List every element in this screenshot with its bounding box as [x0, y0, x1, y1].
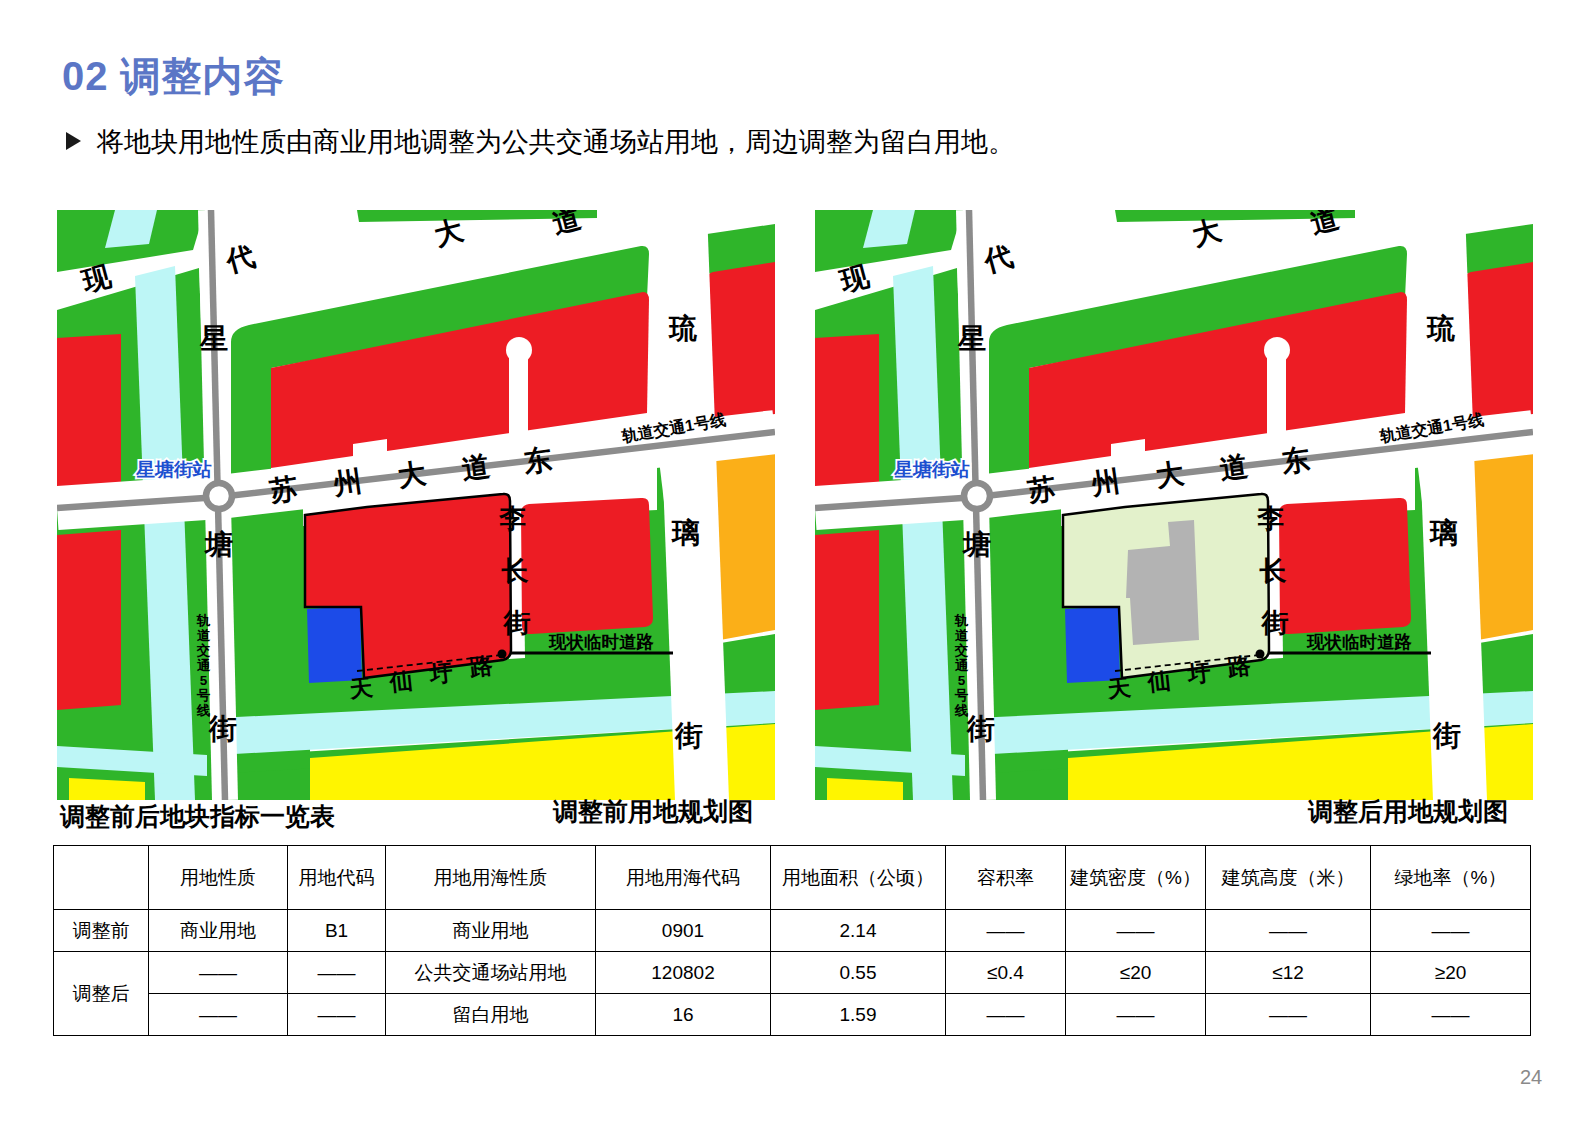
header-landsea-code: 用地用海代码 [596, 846, 771, 910]
east-red-block [521, 498, 653, 634]
svg-text:道: 道 [955, 628, 969, 643]
slide: 02 调整内容 将地块用地性质由商业用地调整为公共交通场站用地，周边调整为留白用… [0, 0, 1587, 1123]
cell: 留白用地 [386, 994, 596, 1036]
cell: —— [149, 952, 288, 994]
cell: —— [288, 994, 386, 1036]
svg-text:李: 李 [499, 504, 527, 534]
red-block [1465, 262, 1533, 421]
header-area: 用地面积（公顷） [771, 846, 946, 910]
svg-text:街: 街 [1432, 720, 1461, 751]
red-block [815, 530, 879, 710]
svg-text:长: 长 [501, 556, 529, 586]
svg-text:交: 交 [196, 643, 211, 658]
svg-text:大: 大 [1154, 457, 1187, 492]
svg-text:星: 星 [957, 323, 986, 354]
svg-text:塘: 塘 [962, 529, 991, 560]
header-far: 容积率 [946, 846, 1066, 910]
header-greenrate: 绿地率（%） [1371, 846, 1531, 910]
svg-text:号: 号 [196, 688, 211, 703]
table-row-after-2: —— —— 留白用地 16 1.59 —— —— —— —— [54, 994, 1531, 1036]
cell: —— [1066, 994, 1206, 1036]
cell: —— [288, 952, 386, 994]
cell: ≤0.4 [946, 952, 1066, 994]
red-block [57, 530, 121, 710]
svg-text:东: 东 [521, 443, 554, 478]
svg-text:道: 道 [1217, 450, 1250, 485]
cell: 0.55 [771, 952, 946, 994]
blue-parcel [307, 606, 362, 683]
svg-text:璃: 璃 [671, 517, 700, 548]
svg-text:街: 街 [674, 720, 703, 751]
bullet-arrow-icon [66, 132, 81, 150]
cell: 2.14 [771, 910, 946, 952]
svg-text:路: 路 [468, 652, 494, 680]
cell: 1.59 [771, 994, 946, 1036]
roundabout [964, 483, 990, 509]
planning-map-svg: 现代大道星塘街苏州大道东琉璃街李长街天仙圩路轨道交通5号线轨道交通1号线星塘街站… [815, 210, 1533, 800]
svg-text:街: 街 [1261, 608, 1289, 638]
road-junction-dot [498, 650, 507, 659]
svg-text:天: 天 [1105, 674, 1132, 702]
before-map-caption: 调整前用地规划图 [553, 795, 753, 828]
svg-text:天: 天 [347, 674, 374, 702]
header-landuse: 用地性质 [149, 846, 288, 910]
row-label-before: 调整前 [54, 910, 149, 952]
after-map-caption: 调整后用地规划图 [1308, 795, 1508, 828]
cell: ≤12 [1206, 952, 1371, 994]
svg-text:道: 道 [459, 450, 492, 485]
cell: —— [1371, 910, 1531, 952]
cell: ≥20 [1371, 952, 1531, 994]
cell: —— [1206, 910, 1371, 952]
svg-text:星: 星 [199, 323, 228, 354]
temp-road-label: 现状临时道路 [1306, 632, 1413, 652]
svg-text:线: 线 [954, 703, 969, 718]
page-title: 02 调整内容 [62, 49, 285, 104]
table-title: 调整前后地块指标一览表 [60, 800, 335, 833]
header-density: 建筑密度（%） [1066, 846, 1206, 910]
row-label-after: 调整后 [54, 952, 149, 1036]
svg-text:5: 5 [958, 673, 966, 688]
header-landcode: 用地代码 [288, 846, 386, 910]
cell: 120802 [596, 952, 771, 994]
temp-road-label: 现状临时道路 [548, 632, 655, 652]
road-junction-dot [1256, 650, 1265, 659]
cell: —— [1066, 910, 1206, 952]
svg-text:街: 街 [503, 608, 531, 638]
indicator-table: 用地性质 用地代码 用地用海性质 用地用海代码 用地面积（公顷） 容积率 建筑密… [53, 845, 1531, 1036]
cell: —— [1206, 994, 1371, 1036]
cell: 16 [596, 994, 771, 1036]
svg-text:州: 州 [1089, 465, 1122, 500]
svg-text:仙: 仙 [387, 667, 414, 695]
svg-text:线: 线 [196, 703, 211, 718]
svg-text:大: 大 [396, 457, 429, 492]
svg-text:号: 号 [954, 688, 969, 703]
table-row-before: 调整前 商业用地 B1 商业用地 0901 2.14 —— —— —— —— [54, 910, 1531, 952]
svg-text:5: 5 [200, 673, 208, 688]
svg-text:李: 李 [1257, 504, 1285, 534]
cell: —— [1371, 994, 1531, 1036]
cell: —— [149, 994, 288, 1036]
page-number: 24 [1520, 1066, 1542, 1089]
svg-text:仙: 仙 [1145, 667, 1172, 695]
svg-text:街: 街 [966, 713, 995, 744]
cell: B1 [288, 910, 386, 952]
svg-text:圩: 圩 [426, 659, 454, 687]
svg-text:长: 长 [1259, 556, 1287, 586]
planning-map-svg: 现代大道星塘街苏州大道东琉璃街李长街天仙圩路轨道交通5号线轨道交通1号线星塘街站… [57, 210, 775, 800]
svg-text:轨: 轨 [954, 613, 969, 628]
planning-map-after: 现代大道星塘街苏州大道东琉璃街李长街天仙圩路轨道交通5号线轨道交通1号线星塘街站… [815, 210, 1533, 800]
svg-text:琉: 琉 [668, 313, 697, 344]
svg-text:街: 街 [208, 713, 237, 744]
metro-station-label: 星塘街站 [893, 459, 970, 480]
cell: 商业用地 [149, 910, 288, 952]
svg-text:苏: 苏 [1025, 472, 1058, 507]
blue-parcel [1065, 606, 1120, 683]
header-height: 建筑高度（米） [1206, 846, 1371, 910]
red-block [707, 262, 775, 421]
svg-text:通: 通 [955, 658, 969, 673]
svg-text:璃: 璃 [1429, 517, 1458, 548]
table-header-row: 用地性质 用地代码 用地用海性质 用地用海代码 用地面积（公顷） 容积率 建筑密… [54, 846, 1531, 910]
table-row-after-1: 调整后 —— —— 公共交通场站用地 120802 0.55 ≤0.4 ≤20 … [54, 952, 1531, 994]
roundabout [206, 483, 232, 509]
header-blank [54, 846, 149, 910]
svg-text:州: 州 [331, 465, 364, 500]
svg-text:道: 道 [197, 628, 211, 643]
east-red-block [1279, 498, 1411, 634]
svg-text:苏: 苏 [267, 472, 300, 507]
cell: 0901 [596, 910, 771, 952]
cell: 公共交通场站用地 [386, 952, 596, 994]
metro-station-label: 星塘街站 [135, 459, 212, 480]
svg-text:圩: 圩 [1184, 659, 1212, 687]
svg-text:琉: 琉 [1426, 313, 1455, 344]
svg-text:通: 通 [197, 658, 211, 673]
cell: ≤20 [1066, 952, 1206, 994]
svg-text:交: 交 [954, 643, 969, 658]
cell: —— [946, 994, 1066, 1036]
header-landsea-use: 用地用海性质 [386, 846, 596, 910]
svg-text:东: 东 [1279, 443, 1312, 478]
cell: —— [946, 910, 1066, 952]
bullet-point: 将地块用地性质由商业用地调整为公共交通场站用地，周边调整为留白用地。 [66, 124, 1015, 160]
bullet-text: 将地块用地性质由商业用地调整为公共交通场站用地，周边调整为留白用地。 [97, 124, 1015, 160]
svg-text:路: 路 [1226, 652, 1252, 680]
cell: 商业用地 [386, 910, 596, 952]
planning-map-before: 现代大道星塘街苏州大道东琉璃街李长街天仙圩路轨道交通5号线轨道交通1号线星塘街站… [57, 210, 775, 800]
svg-text:轨: 轨 [196, 613, 211, 628]
svg-text:塘: 塘 [204, 529, 233, 560]
